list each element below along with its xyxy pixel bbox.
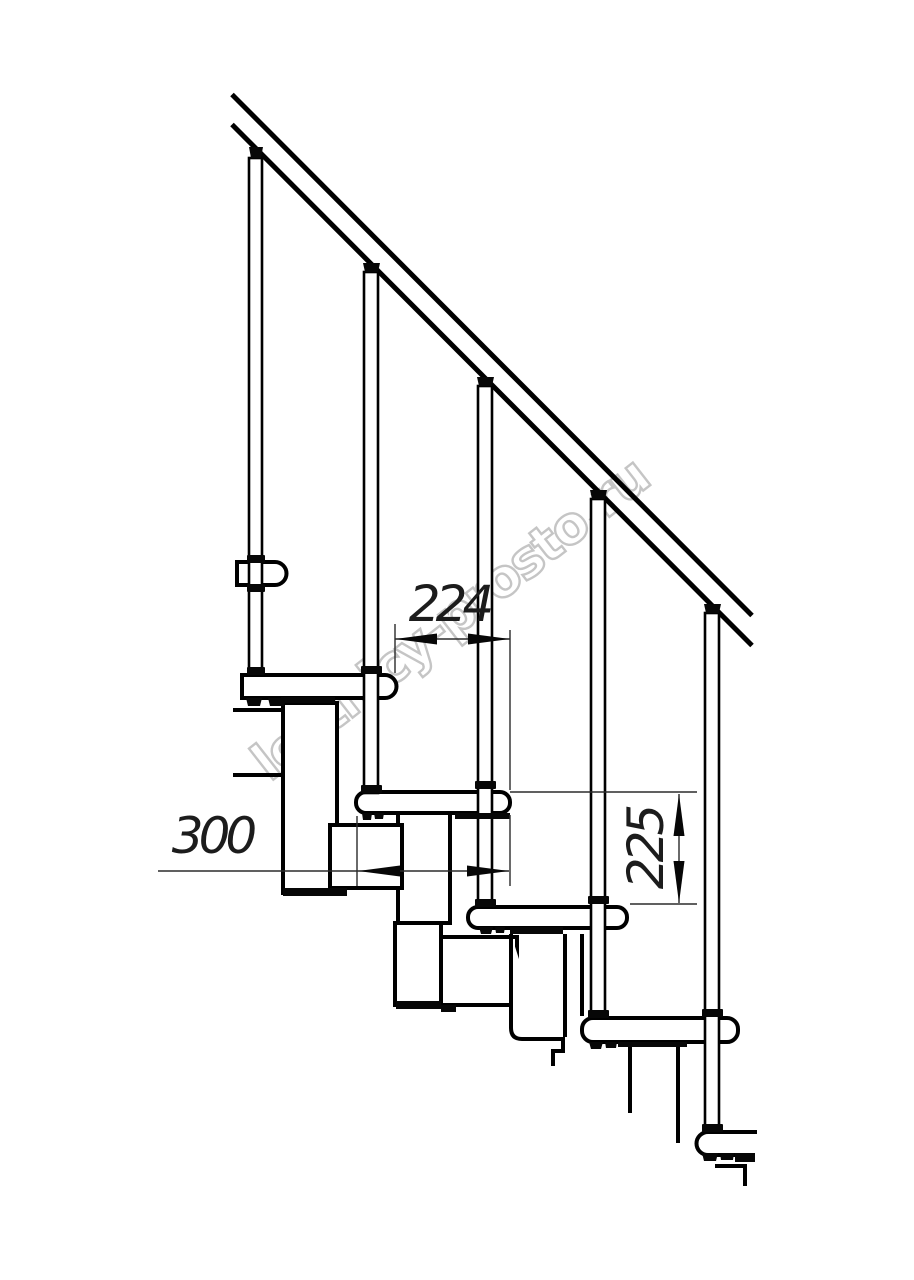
baluster-2-collar-a xyxy=(361,666,382,674)
tread-3-mount-b xyxy=(495,927,505,933)
dimension-rise-label: 225 xyxy=(617,806,675,890)
arrow-down xyxy=(674,861,685,903)
baluster-5 xyxy=(705,613,719,1132)
joint-box-2-foot xyxy=(330,888,347,896)
tread-4-mount-b xyxy=(605,1042,617,1048)
tread-3-column-strip xyxy=(510,927,563,934)
baluster-5-collar-b xyxy=(702,1124,723,1132)
tread-5-strip xyxy=(735,1153,755,1162)
arrow-up xyxy=(674,794,685,836)
tread-2-front-strip xyxy=(455,813,510,819)
baluster-3-collar-a xyxy=(475,781,496,789)
baluster-2 xyxy=(364,272,378,793)
tread-3-mount-a xyxy=(479,927,493,934)
tread-1-mount-a xyxy=(246,698,262,706)
tread-4-column-strip xyxy=(618,1042,687,1047)
baluster-4-rail-wedge xyxy=(590,490,607,499)
baluster-4 xyxy=(591,499,605,1018)
baluster-1-rail-wedge xyxy=(249,147,263,158)
module-column-2-upper xyxy=(398,813,450,923)
staircase-technical-drawing: lestnicy-prosto.ru xyxy=(0,0,914,1280)
module-column-2-lower xyxy=(395,923,441,1005)
tread-4-mount-a xyxy=(589,1042,603,1049)
drawing-page: lestnicy-prosto.ru xyxy=(0,0,914,1280)
baluster-4-collar-b xyxy=(588,1010,609,1018)
tread-2-mount-a xyxy=(362,813,372,820)
column-1-foot xyxy=(283,888,331,896)
dimension-depth-label: 300 xyxy=(172,807,256,865)
baluster-3-rail-wedge xyxy=(477,377,494,386)
tread-5-mount-a xyxy=(702,1153,718,1161)
baluster-1-collar-b xyxy=(247,584,265,592)
baluster-1-collar-c xyxy=(247,667,265,675)
baluster-2-collar-b xyxy=(361,785,382,793)
tread-2-mount-b xyxy=(374,813,384,819)
baluster-4-collar-a xyxy=(588,896,609,904)
dimension-run-label: 224 xyxy=(409,575,492,633)
drawing-cut-line xyxy=(715,1166,745,1186)
connectors xyxy=(246,147,755,1162)
column-2-foot xyxy=(396,1001,441,1009)
joint-box-3-foot xyxy=(441,1005,456,1012)
tread-5-mount-b xyxy=(720,1153,734,1160)
baluster-3 xyxy=(478,386,492,907)
baluster-3-collar-b xyxy=(475,899,496,907)
baluster-5-rail-wedge xyxy=(704,604,721,613)
module-joint-box-2 xyxy=(330,825,402,888)
baluster-5-collar-a xyxy=(702,1009,723,1017)
module-joint-box-3 xyxy=(441,937,517,1005)
baluster-1 xyxy=(249,158,262,675)
baluster-1-collar-a xyxy=(247,555,265,563)
tread-5-partial xyxy=(697,1132,758,1155)
tread-1-column-strip xyxy=(281,697,335,703)
baluster-2-rail-wedge xyxy=(363,263,380,272)
